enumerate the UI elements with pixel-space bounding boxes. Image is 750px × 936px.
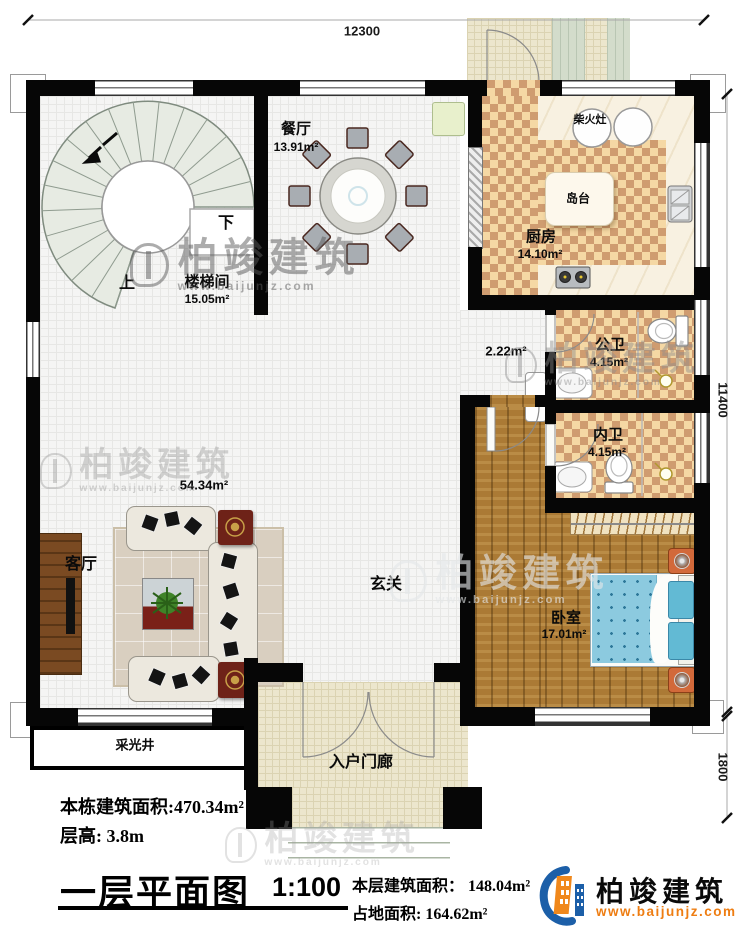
public-bath-label: 公卫 — [595, 334, 625, 355]
coffee-table — [142, 578, 194, 630]
dining-area: 13.91m² — [274, 140, 319, 154]
wall-dining-kitchen-2 — [468, 247, 482, 295]
stair-down-label: 下 — [218, 209, 234, 233]
tv — [66, 578, 75, 634]
lightwell-label: 采光井 — [115, 735, 154, 754]
public-bath-area: 4.15m² — [590, 355, 628, 369]
plan-scale: 1:100 — [272, 872, 341, 903]
window-kitchen-right — [694, 143, 710, 267]
sofa-top — [126, 506, 216, 551]
nightstand-top — [668, 548, 696, 574]
wardrobe — [570, 510, 696, 535]
stair-up-label: 上 — [119, 269, 135, 293]
wall-top-4 — [540, 80, 562, 96]
window-kitchen-top — [562, 80, 675, 96]
wall-right-1 — [694, 80, 710, 143]
watermark-logo-icon — [225, 827, 257, 863]
wall-porch-left — [244, 658, 258, 790]
wood-stove-label: 柴火灶 — [574, 111, 607, 127]
floor-area: 本层建筑面积： 148.04m² — [352, 872, 530, 896]
wall-kitchen-bottom — [468, 295, 710, 310]
wall-bath-divider — [545, 400, 694, 413]
bedroom-area: 17.01m² — [542, 627, 587, 641]
porch-steps — [288, 827, 450, 872]
inner-bath-label: 内卫 — [593, 424, 623, 445]
bedroom-door-gap — [490, 395, 535, 407]
bed-cushion-2 — [668, 622, 694, 660]
wall-hall-bottom-2 — [434, 663, 468, 682]
dim-height-porch-label: 1800 — [716, 753, 731, 782]
wall-right-4 — [694, 483, 710, 726]
patio-step-band-2 — [607, 18, 630, 82]
flue-hatch — [468, 147, 483, 249]
porch-label: 入户门廊 — [329, 748, 393, 772]
wall-dining-kitchen-1 — [468, 80, 482, 147]
living-label: 客厅 — [65, 550, 97, 574]
kitchen-door-patch — [487, 80, 540, 96]
wall-bedroom-bottom-1 — [460, 707, 535, 726]
porch-column-left — [246, 787, 292, 829]
window-lightwell — [78, 708, 212, 726]
stairwell-label: 楼梯间 — [184, 271, 229, 292]
window-left-hall — [26, 322, 40, 377]
dim-width-label: 12300 — [344, 24, 380, 39]
stairwell-area: 15.05m² — [185, 292, 230, 306]
wall-living-bottom-1 — [26, 708, 78, 726]
window-bedroom — [535, 707, 650, 726]
wall-pubbath-left-b — [545, 352, 556, 400]
wall-top-2 — [193, 80, 300, 96]
floor-height: 层高: 3.8m — [60, 822, 144, 848]
corridor-area: 2.22m² — [485, 344, 526, 359]
bed-blanket — [592, 575, 657, 663]
wall-pubbath-left-a — [545, 310, 556, 315]
inner-bath-area: 4.15m² — [588, 445, 626, 459]
nightstand-bottom — [668, 667, 696, 693]
living-area: 54.34m² — [180, 478, 228, 493]
wall-right-3 — [694, 375, 710, 413]
sofa-bottom — [128, 656, 220, 702]
window-inner-bath — [694, 413, 710, 483]
porch-column-right — [443, 787, 482, 829]
footprint-area: 占地面积: 164.62m² — [352, 900, 487, 924]
patio-floor — [467, 18, 630, 82]
bed-cushion-1 — [668, 581, 694, 619]
side-table-top — [218, 510, 253, 545]
floorplan-canvas: 12300 11400 1800 餐厅 13.91m² 楼梯间 15.05m² … — [0, 0, 750, 936]
wall-left-2 — [26, 377, 40, 726]
window-stairwell — [95, 80, 193, 96]
island-label: 岛台 — [566, 190, 590, 207]
foyer-label: 玄关 — [370, 570, 402, 594]
dining-label: 餐厅 — [281, 118, 311, 139]
fridge — [432, 102, 465, 136]
title-underline — [58, 906, 348, 910]
bedroom-floor-strip — [475, 407, 545, 707]
wall-hall-bottom-1 — [258, 663, 303, 682]
kitchen-area: 14.10m² — [518, 247, 563, 261]
window-public-bath — [694, 300, 710, 375]
wall-innerbath-left-a — [545, 413, 556, 424]
total-building-area: 本栋建筑面积:470.34m² — [60, 793, 244, 819]
brand-site: www.baijunjz.com — [596, 904, 737, 919]
patio-step-band-1 — [552, 18, 585, 82]
wall-left-1 — [26, 80, 40, 322]
kitchen-checker-strip — [482, 96, 538, 295]
wall-bedroom-top-2 — [535, 395, 555, 407]
kitchen-label: 厨房 — [526, 226, 556, 247]
porch-floor-lower — [292, 787, 443, 827]
bedroom-label: 卧室 — [551, 607, 581, 628]
window-dining — [300, 80, 425, 96]
wall-stair-dining — [254, 80, 268, 315]
dim-height-main-label: 11400 — [716, 382, 731, 417]
sofa-right — [208, 542, 258, 667]
wall-bedroom-bottom-2 — [650, 707, 710, 726]
brand-logo-icon — [538, 864, 590, 926]
wall-innerbath-bottom — [545, 498, 694, 513]
